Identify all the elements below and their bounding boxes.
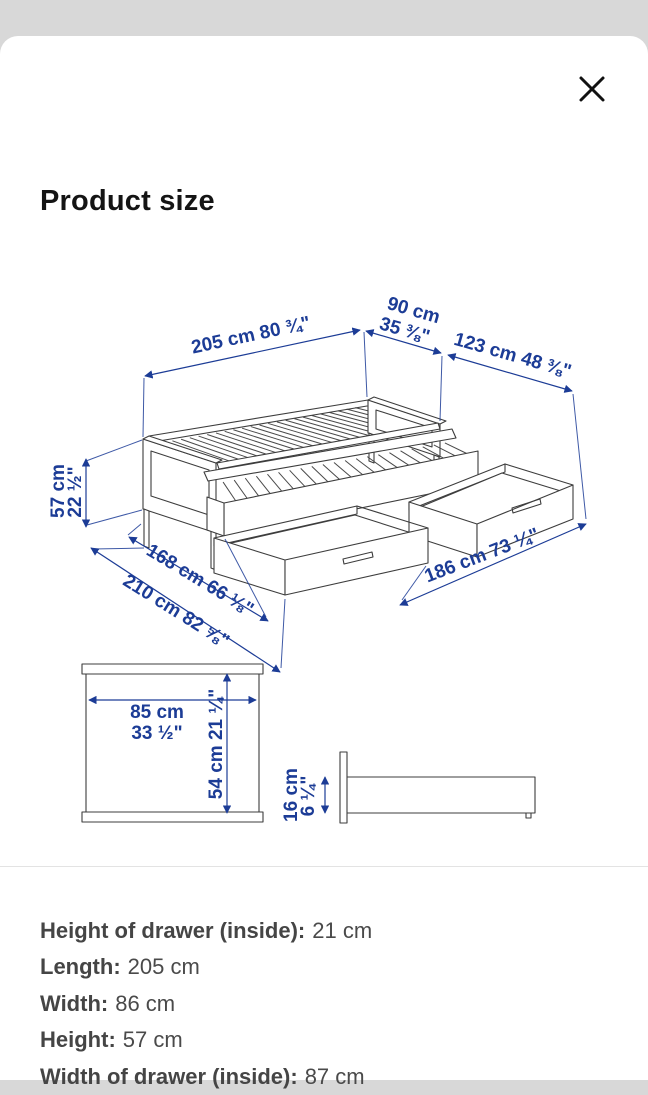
spec-value: 205 cm <box>128 954 200 979</box>
dim-label-width-85-line2: 33 ½" <box>131 723 182 744</box>
spec-label: Width: <box>40 991 108 1016</box>
spec-row: Width:86 cm <box>40 986 372 1022</box>
spec-list: Height of drawer (inside):21 cm Length:2… <box>40 913 372 1095</box>
dim-label-height-16-line2: 6 ¼" <box>298 776 319 817</box>
spec-value: 86 cm <box>115 991 175 1016</box>
section-divider <box>0 866 648 867</box>
mattress-top-view: 85 cm 33 ½" 54 cm 21 ¼" <box>82 664 263 822</box>
spec-label: Height: <box>40 1027 116 1052</box>
dim-label-height-57-line2: 22 ½" <box>65 466 86 517</box>
bed-isometric-drawing <box>143 397 573 595</box>
page-title: Product size <box>40 185 215 218</box>
close-icon <box>577 74 607 104</box>
spec-value: 57 cm <box>123 1027 183 1052</box>
dim-label-extension-123: 123 cm 48 ⅜" <box>451 329 573 383</box>
close-button[interactable] <box>566 63 618 115</box>
spec-row: Height of drawer (inside):21 cm <box>40 913 372 949</box>
dim-label-width-85-line1: 85 cm <box>130 702 184 723</box>
screen: { "header": { "title": "Product size", "… <box>0 0 648 1080</box>
spec-label: Height of drawer (inside): <box>40 918 305 943</box>
spec-label: Length: <box>40 954 121 979</box>
spec-value: 87 cm <box>305 1064 365 1089</box>
spec-value: 21 cm <box>312 918 372 943</box>
spec-row: Width of drawer (inside):87 cm <box>40 1059 372 1095</box>
dim-label-depth-54: 54 cm 21 ¼" <box>206 689 227 799</box>
spec-row: Height:57 cm <box>40 1022 372 1058</box>
dim-label-length-205: 205 cm 80 ¾" <box>189 313 312 359</box>
spec-row: Length:205 cm <box>40 949 372 985</box>
product-dimension-diagram: 205 cm 80 ¾" 90 cm 35 ⅜" 123 cm 48 ⅜" 57… <box>0 280 648 840</box>
bed-side-profile: 16 cm 6 ¼" <box>281 752 535 823</box>
spec-label: Width of drawer (inside): <box>40 1064 298 1089</box>
